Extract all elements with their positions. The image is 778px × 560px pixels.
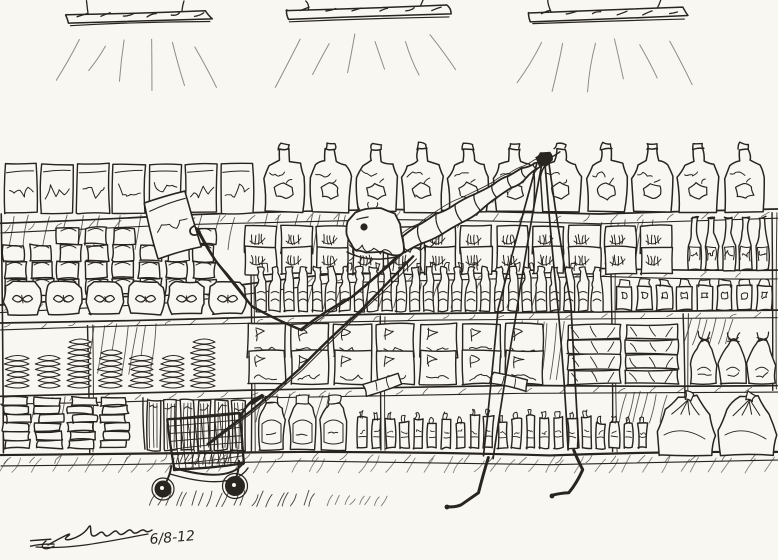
ink-drawing-grocery-creature: 6/8-12 xyxy=(0,0,778,560)
items-tied-sacks xyxy=(690,331,775,384)
items-jars xyxy=(259,395,347,451)
items-cereal-boxes xyxy=(4,163,253,214)
artwork-frame: 6/8-12 xyxy=(0,0,778,560)
